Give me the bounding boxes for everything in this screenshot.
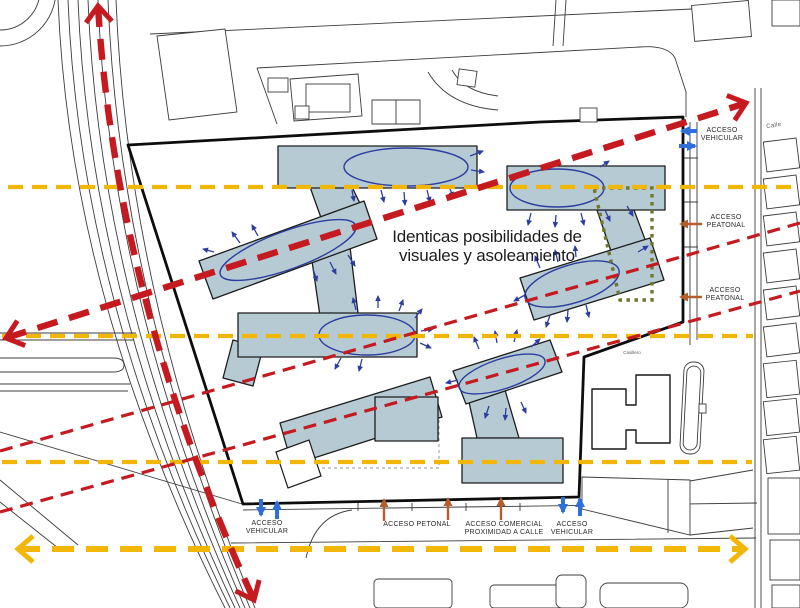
label-acceso-comercial: ACCESO COMERCIAL PROXIMIDAD A CALLE	[465, 521, 544, 536]
main-annotation: Identicas posibilidades de visuales y as…	[392, 227, 582, 265]
label-small-building: Casillero	[623, 350, 641, 355]
context-buildings-right	[763, 138, 800, 608]
label-acceso-vehicular-top-right: ACCESO VEHICULAR	[701, 127, 743, 142]
site-gate	[580, 108, 597, 122]
site-plan-diagram: Identicas posibilidades de visuales y as…	[0, 0, 800, 608]
building-annex	[375, 397, 438, 441]
annotation-line-2: visuales y asoleamiento	[392, 246, 582, 265]
label-acceso-vehicular-bottom-left: ACCESO VEHICULAR	[246, 520, 288, 535]
label-acceso-peatonal-1: ACCESO PEATONAL	[707, 214, 746, 229]
roundabout-arc	[0, 0, 56, 46]
annotation-line-1: Identicas posibilidades de	[392, 227, 582, 246]
label-acceso-vehicular-bottom-right: ACCESO VEHICULAR	[551, 521, 593, 536]
context-block	[157, 29, 237, 120]
street-median	[0, 358, 124, 372]
label-acceso-peatonal-2: ACCESO PEATONAL	[706, 287, 745, 302]
site-plan-graphic	[0, 0, 800, 608]
context-h-building	[592, 375, 670, 449]
roundabout-arc	[0, 0, 40, 30]
label-acceso-petonal: ACCESO PETONAL	[383, 521, 451, 529]
